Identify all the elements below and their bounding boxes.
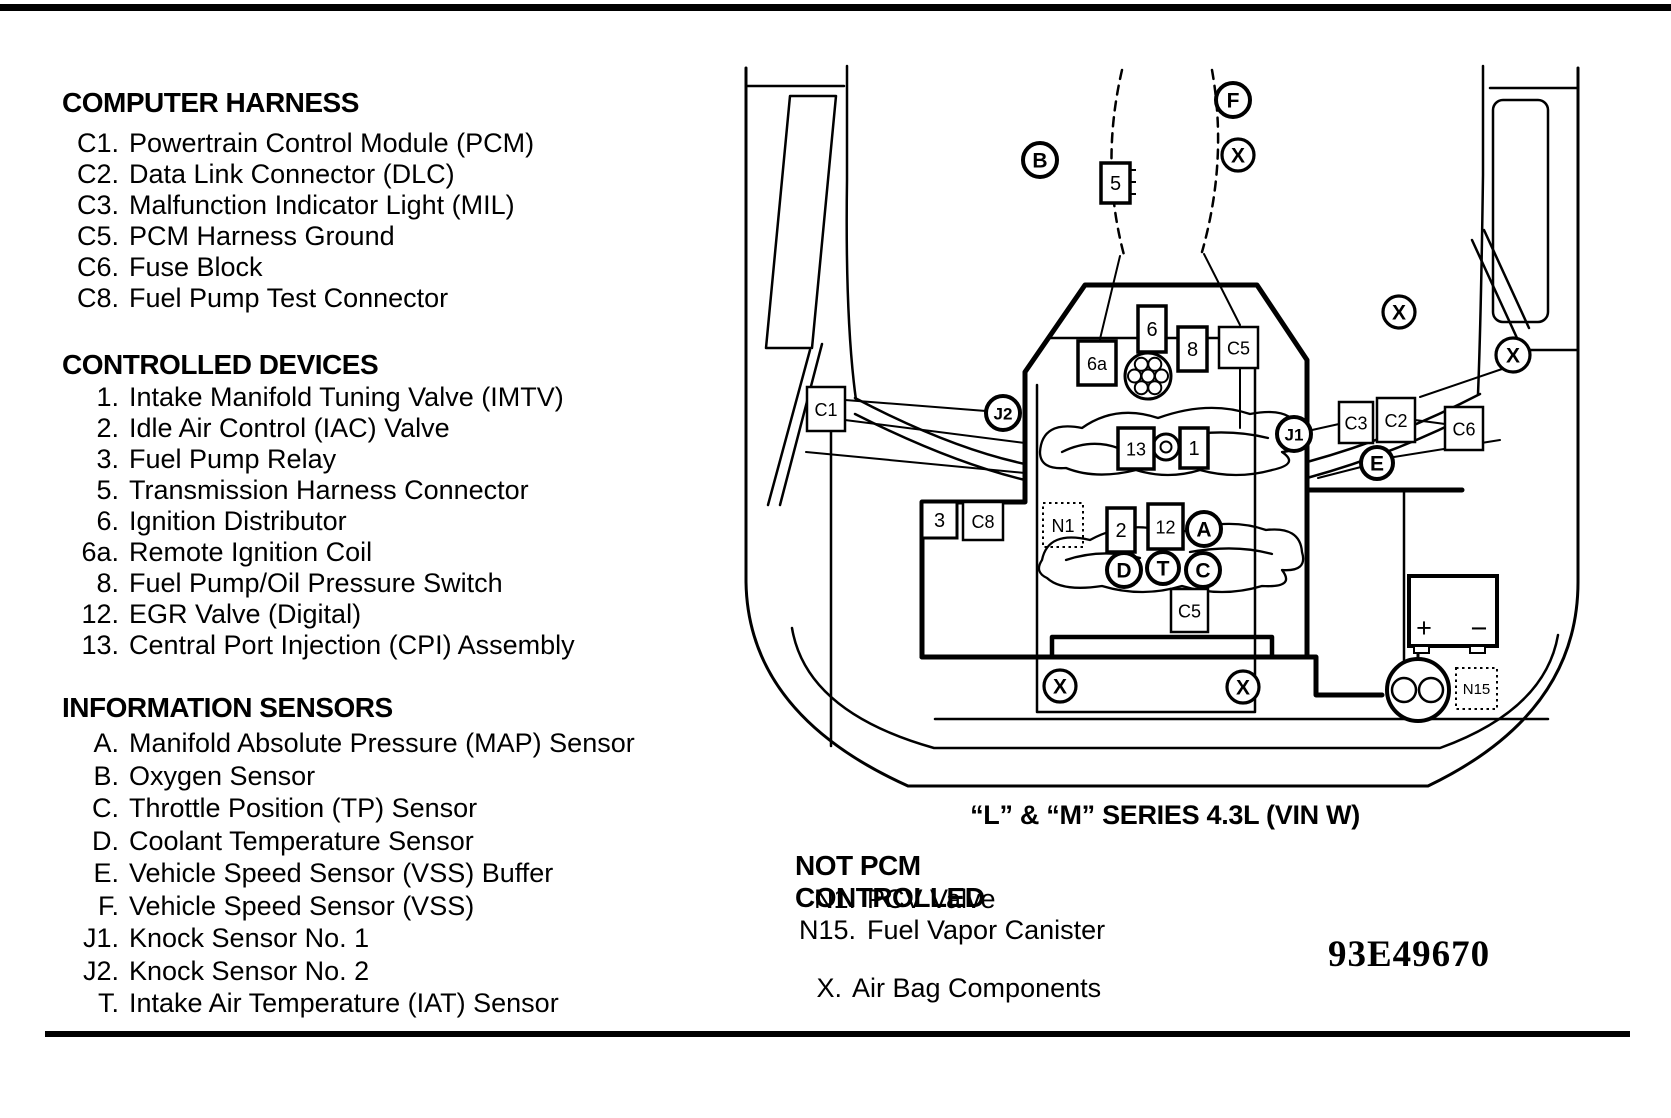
legend-section: COMPUTER HARNESSC1.Powertrain Control Mo… (0, 88, 720, 314)
callout-box-6: 6 (1138, 306, 1166, 352)
legend-item-code: C. (62, 792, 119, 825)
legend-item-code: A. (62, 727, 119, 760)
legend-item-code: N1. (795, 884, 856, 915)
svg-text:2: 2 (1115, 520, 1126, 542)
left-fender-strip (766, 96, 836, 348)
legend-item: C1.Powertrain Control Module (PCM) (0, 128, 720, 159)
svg-text:13: 13 (1126, 440, 1146, 460)
legend-item: 6a.Remote Ignition Coil (0, 537, 720, 568)
legend-item: 1.Intake Manifold Tuning Valve (IMTV) (0, 382, 720, 413)
component-legend: COMPUTER HARNESSC1.Powertrain Control Mo… (0, 0, 720, 1030)
legend-section-title: INFORMATION SENSORS (0, 693, 720, 723)
svg-text:J2: J2 (994, 405, 1013, 424)
svg-text:X: X (1231, 145, 1245, 168)
svg-text:C1: C1 (814, 400, 837, 420)
callout-box-6a: 6a (1078, 341, 1116, 385)
legend-item: C8.Fuel Pump Test Connector (0, 283, 720, 314)
svg-text:12: 12 (1155, 518, 1175, 538)
svg-text:5: 5 (1110, 173, 1121, 195)
imtv-fitting (1153, 434, 1179, 460)
callout-box-2: 2 (1107, 508, 1135, 552)
callout-circle-X: X (1496, 338, 1530, 372)
legend-item-label: Fuel Vapor Canister (867, 915, 1105, 946)
right-fender-strip (1493, 100, 1548, 322)
fuel-vapor-canister (1387, 659, 1449, 721)
callout-box-13: 13 (1118, 428, 1154, 469)
callout-box-C6: C6 (1445, 407, 1483, 450)
legend-item-code: C5. (62, 221, 119, 252)
svg-text:E: E (1370, 453, 1384, 476)
legend-item: C2.Data Link Connector (DLC) (0, 159, 720, 190)
component-location-diagram: + − 568C56aC1131C3C2C63C8212C5N1N15BFXXX… (690, 55, 1595, 800)
legend-item-code: 12. (62, 599, 119, 630)
callout-box-C5: C5 (1171, 589, 1208, 632)
legend-item: B.Oxygen Sensor (0, 760, 720, 793)
callout-circle-X: X (1227, 671, 1259, 703)
legend-item-code: N15. (795, 915, 856, 946)
legend-item-label: Manifold Absolute Pressure (MAP) Sensor (129, 727, 635, 760)
legend-item-label: Oxygen Sensor (129, 760, 315, 793)
legend-item-code: C8. (62, 283, 119, 314)
legend-item: C5.PCM Harness Ground (0, 221, 720, 252)
callout-circle-D: D (1107, 553, 1141, 587)
legend-section-title: COMPUTER HARNESS (0, 88, 720, 118)
legend-item-label: PCM Harness Ground (129, 221, 395, 252)
svg-text:N1: N1 (1051, 516, 1074, 536)
svg-text:6a: 6a (1087, 354, 1108, 374)
diagram-caption: “L” & “M” SERIES 4.3L (VIN W) (880, 800, 1450, 831)
legend-item-code: 6. (62, 506, 119, 537)
callout-circle-T: T (1147, 552, 1179, 584)
callout-circle-F: F (1216, 83, 1250, 117)
legend-item-label: Fuel Pump/Oil Pressure Switch (129, 568, 503, 599)
callout-dotted-box-N1: N1 (1043, 503, 1083, 547)
service-manual-page: { "ink_color": "#000000", "paper_color":… (0, 0, 1671, 1118)
legend-item: 6.Ignition Distributor (0, 506, 720, 537)
legend-item-code: 1. (62, 382, 119, 413)
legend-item-code: C3. (62, 190, 119, 221)
svg-text:C2: C2 (1384, 411, 1407, 431)
legend-item: A.Manifold Absolute Pressure (MAP) Senso… (0, 727, 720, 760)
legend-item-label: Throttle Position (TP) Sensor (129, 792, 477, 825)
svg-text:C: C (1195, 560, 1210, 583)
engine-bay-floor (922, 657, 1382, 695)
legend-item-code: 5. (62, 475, 119, 506)
callout-box-12: 12 (1148, 504, 1183, 549)
figure-number: 93E49670 (1328, 933, 1490, 976)
legend-item-label: Remote Ignition Coil (129, 537, 372, 568)
legend-item: C6.Fuse Block (0, 252, 720, 283)
legend-item-label: Intake Manifold Tuning Valve (IMTV) (129, 382, 564, 413)
svg-text:1: 1 (1188, 438, 1199, 460)
legend-item-label: EGR Valve (Digital) (129, 599, 361, 630)
svg-text:A: A (1196, 519, 1211, 542)
svg-text:C3: C3 (1344, 414, 1367, 434)
callout-box-8: 8 (1178, 327, 1207, 371)
legend-item: N15.Fuel Vapor Canister (0, 915, 795, 946)
legend-item: 13.Central Port Injection (CPI) Assembly (0, 630, 720, 661)
svg-text:C8: C8 (971, 512, 994, 532)
legend-item: N1.PCV Valve (0, 884, 795, 915)
legend-item-code: 13. (62, 630, 119, 661)
callout-box-5: 5 (1101, 163, 1130, 203)
legend-item-label: PCV Valve (867, 884, 996, 915)
svg-text:C5: C5 (1227, 339, 1250, 359)
legend-item: 12.EGR Valve (Digital) (0, 599, 720, 630)
legend-item-label: Ignition Distributor (129, 506, 347, 537)
svg-text:X: X (1392, 302, 1406, 325)
callout-circle-X: X (1044, 670, 1076, 702)
legend-item: C3.Malfunction Indicator Light (MIL) (0, 190, 720, 221)
legend-item: 8.Fuel Pump/Oil Pressure Switch (0, 568, 720, 599)
legend-item-code: 3. (62, 444, 119, 475)
svg-text:J1: J1 (1285, 426, 1304, 445)
callout-circle-C: C (1186, 553, 1220, 587)
legend-item-code: C6. (62, 252, 119, 283)
svg-text:X: X (1053, 676, 1067, 699)
legend-section: INFORMATION SENSORSA.Manifold Absolute P… (0, 693, 720, 1020)
svg-text:T: T (1157, 558, 1170, 581)
svg-text:6: 6 (1146, 319, 1157, 341)
legend-item-code: X. (795, 973, 842, 1004)
callout-box-C1: C1 (807, 387, 845, 431)
skid-plate (1052, 637, 1272, 657)
legend-item-label: Powertrain Control Module (PCM) (129, 128, 534, 159)
legend-item: 2.Idle Air Control (IAC) Valve (0, 413, 720, 444)
legend-item-label: Central Port Injection (CPI) Assembly (129, 630, 575, 661)
svg-text:C5: C5 (1178, 602, 1201, 622)
callout-box-1: 1 (1180, 428, 1208, 468)
callout-box-C2: C2 (1377, 398, 1415, 442)
callout-box-C5: C5 (1219, 327, 1258, 368)
legend-item-label: Coolant Temperature Sensor (129, 825, 474, 858)
legend-item-label: Transmission Harness Connector (129, 475, 529, 506)
callout-circle-E: E (1361, 447, 1393, 479)
svg-text:3: 3 (934, 510, 945, 532)
svg-text:D: D (1116, 560, 1131, 583)
battery-minus-terminal: − (1471, 613, 1488, 645)
callout-circle-A: A (1187, 512, 1221, 546)
svg-text:8: 8 (1187, 339, 1198, 361)
svg-text:X: X (1236, 677, 1250, 700)
legend-item: D.Coolant Temperature Sensor (0, 825, 720, 858)
callout-circle-X: X (1383, 296, 1415, 328)
legend-item-label: Fuel Pump Relay (129, 444, 336, 475)
distributor-cap (1125, 353, 1171, 399)
legend-item-label: Fuel Pump Test Connector (129, 283, 448, 314)
figure-bottom-border (45, 1031, 1630, 1037)
legend-item-code: 2. (62, 413, 119, 444)
legend-item-label: Malfunction Indicator Light (MIL) (129, 190, 515, 221)
callout-box-3: 3 (922, 502, 957, 538)
battery-plus-terminal: + (1416, 613, 1432, 643)
legend-item-code: B. (62, 760, 119, 793)
legend-item-label: Air Bag Components (852, 973, 1101, 1004)
callout-box-C3: C3 (1339, 402, 1373, 443)
svg-text:N15: N15 (1463, 681, 1491, 698)
legend-item-code: C1. (62, 128, 119, 159)
legend-item-code: C2. (62, 159, 119, 190)
legend-item-code: 8. (62, 568, 119, 599)
callout-dotted-box-N15: N15 (1456, 668, 1497, 709)
callout-circle-B: B (1023, 143, 1057, 177)
legend-item: C.Throttle Position (TP) Sensor (0, 792, 720, 825)
svg-text:B: B (1032, 150, 1047, 173)
callout-circle-J1: J1 (1277, 417, 1311, 451)
svg-text:X: X (1506, 345, 1520, 368)
legend-item: 3.Fuel Pump Relay (0, 444, 720, 475)
callout-box-C8: C8 (963, 502, 1003, 540)
legend-item-label: Idle Air Control (IAC) Valve (129, 413, 450, 444)
callout-circle-X: X (1222, 139, 1254, 171)
legend-section-title: CONTROLLED DEVICES (0, 350, 720, 380)
legend-item-label: Data Link Connector (DLC) (129, 159, 455, 190)
callout-circle-J2: J2 (986, 396, 1020, 430)
legend-item-airbag: X. Air Bag Components (0, 973, 1101, 1004)
legend-item-code: D. (62, 825, 119, 858)
legend-item-label: Fuse Block (129, 252, 263, 283)
svg-text:C6: C6 (1452, 420, 1475, 440)
legend-item-code: 6a. (62, 537, 119, 568)
svg-text:F: F (1227, 90, 1240, 113)
legend-section: CONTROLLED DEVICES1.Intake Manifold Tuni… (0, 350, 720, 661)
legend-item: 5.Transmission Harness Connector (0, 475, 720, 506)
